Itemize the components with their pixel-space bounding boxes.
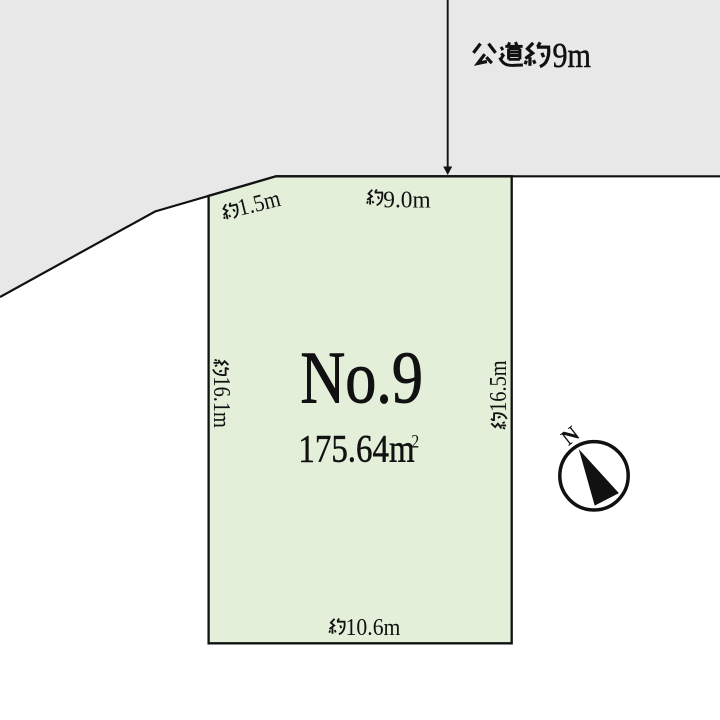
svg-text:10.6m: 10.6m xyxy=(346,615,401,641)
svg-text:9m: 9m xyxy=(553,36,592,75)
svg-text:9.0m: 9.0m xyxy=(383,187,431,213)
svg-text:No.9: No.9 xyxy=(300,337,423,419)
svg-text:2: 2 xyxy=(411,431,419,452)
svg-text:175.64m: 175.64m xyxy=(298,427,414,470)
svg-text:16.5m: 16.5m xyxy=(486,360,512,412)
svg-text:16.1m: 16.1m xyxy=(208,376,234,428)
